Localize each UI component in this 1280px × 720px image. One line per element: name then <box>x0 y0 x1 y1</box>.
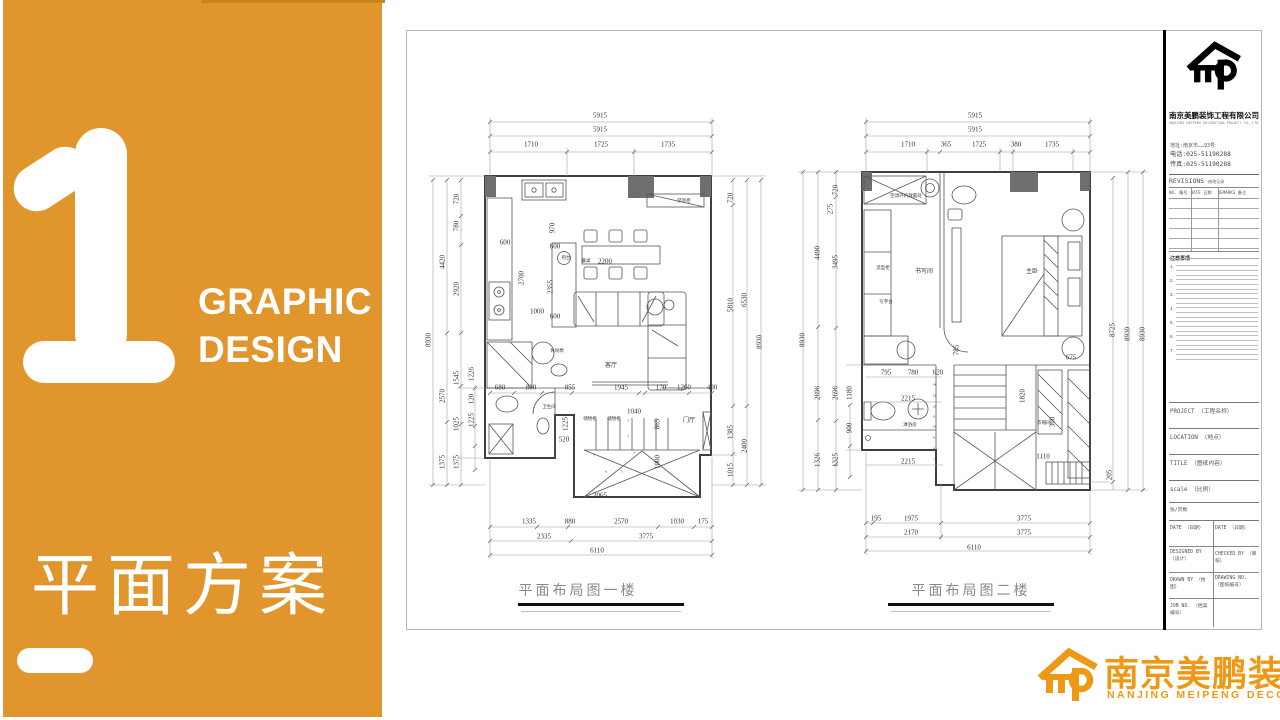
company-fax: 传真:025-51190288 <box>1170 160 1258 170</box>
field-title: TITLE （图纸内容） <box>1169 454 1259 480</box>
note-text-placeholder <box>1176 293 1258 304</box>
note-text-placeholder <box>1176 321 1258 332</box>
plan1-title-rule <box>518 603 684 606</box>
footer-brand-en: NANJING MEIPENG DECORATION <box>1107 689 1280 701</box>
note-text-placeholder <box>1176 307 1258 318</box>
slide-title: 平面方案 <box>31 530 335 629</box>
note-number: 2. <box>1170 279 1174 290</box>
field-date-1: DATE （日期） <box>1169 521 1214 547</box>
plan2-title-rule-thin <box>891 611 1051 612</box>
subtitle-design: DESIGN <box>198 329 343 371</box>
company-name-cn: 南京美鹏装饰工程有限公司 <box>1169 110 1259 121</box>
field-drawing-no: DRAWING NO. （图纸编号） <box>1214 573 1259 599</box>
plan2-title-rule <box>888 603 1054 606</box>
notes-section: 注意事项 1. 2. 3. 4. 5. 6. 7. <box>1169 252 1259 402</box>
note-number: 6. <box>1170 335 1174 346</box>
field-empty <box>1214 599 1259 627</box>
plan1-title-rule-thin <box>521 611 681 612</box>
field-location: LOCATION （地点） <box>1169 428 1259 454</box>
revisions-col-date: DATE 日期 <box>1191 188 1218 198</box>
title-dash <box>17 648 93 673</box>
revisions-col-no: NO. 编号 <box>1169 188 1191 198</box>
big-number-base <box>23 341 175 383</box>
big-number-stem <box>75 128 127 360</box>
revisions-label: REVISIONS <box>1169 177 1204 185</box>
note-text-placeholder <box>1176 349 1258 360</box>
note-text-placeholder <box>1176 265 1258 276</box>
titleblock-grid: DATE （日期） DATE （日期） DESIGNED BY （设计） CHE… <box>1169 520 1259 627</box>
note-text-placeholder <box>1176 279 1258 290</box>
field-date-2: DATE （日期） <box>1214 521 1259 547</box>
floorplan-linework <box>406 30 1262 630</box>
company-name-en: NANJING MEIPENG DECORATION PROJECT CO.,L… <box>1169 121 1259 125</box>
revisions-label-cn: 修改记录 <box>1208 179 1224 184</box>
company-logo-icon <box>1169 34 1259 110</box>
plan2-title: 平面布局图二楼 <box>912 580 1031 600</box>
note-text-placeholder <box>1176 335 1258 346</box>
slide: 1 GRAPHIC DESIGN 平面方案 <box>0 0 1280 720</box>
revisions-col-remarks: REMARKS 备注 <box>1218 188 1259 198</box>
titleblock: 南京美鹏装饰工程有限公司 NANJING MEIPENG DECORATION … <box>1169 34 1259 626</box>
field-designed-by: DESIGNED BY （设计） <box>1169 547 1214 573</box>
note-number: 3. <box>1170 293 1174 304</box>
field-project: PROJECT （工程名称） <box>1169 402 1259 428</box>
subtitle-graphic: GRAPHIC <box>198 281 372 323</box>
footer-logo-icon <box>1036 645 1100 710</box>
note-number: 4. <box>1170 307 1174 318</box>
note-number: 7. <box>1170 349 1174 360</box>
titleblock-divider <box>1163 30 1166 630</box>
plan1-title: 平面布局图一楼 <box>519 580 638 600</box>
field-job-no: JOB NO. （档案编号） <box>1169 599 1214 627</box>
field-checked-by: CHECKED BY （审核） <box>1214 547 1259 573</box>
note-number: 5. <box>1170 321 1174 332</box>
left-accent-panel: 1 GRAPHIC DESIGN 平面方案 <box>3 0 382 717</box>
field-drawn-by: DRAWN BY （绘图） <box>1169 573 1214 599</box>
panel-top-strip <box>201 0 385 3</box>
field-scale: scale （比例） <box>1169 480 1259 502</box>
big-number: 1 <box>3 0 4 1</box>
revisions-table: NO. 编号 DATE 日期 REMARKS 备注 <box>1169 188 1259 252</box>
note-number: 1. <box>1170 265 1174 276</box>
company-tel: 电话:025-51190288 <box>1170 150 1258 160</box>
field-pages: 张/页数 <box>1169 502 1259 520</box>
company-address: 地址:南京市……93号 <box>1170 142 1258 150</box>
